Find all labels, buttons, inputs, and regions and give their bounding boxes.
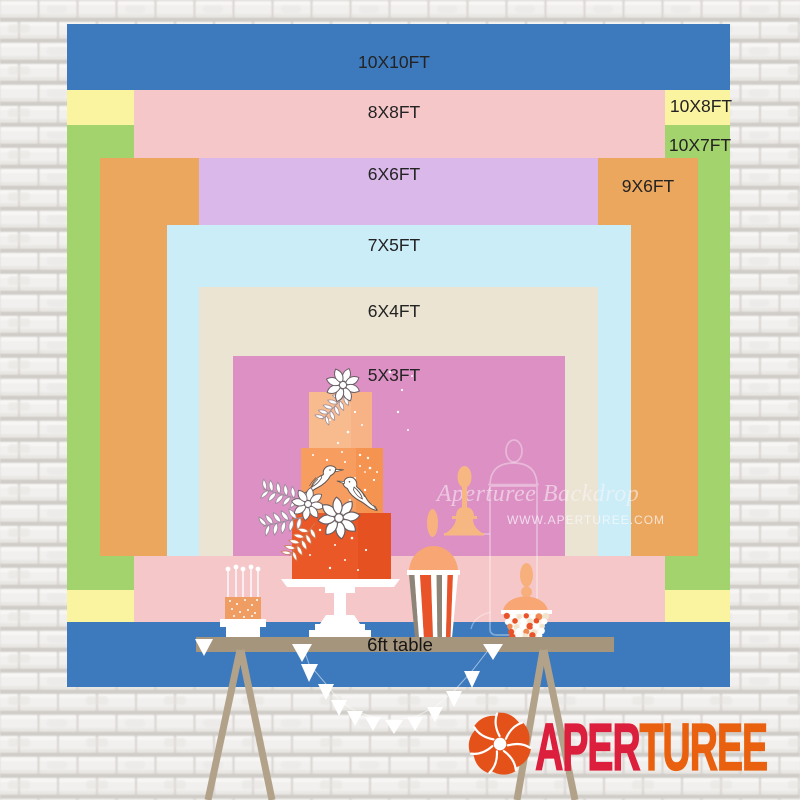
svg-text:APERTUREE: APERTUREE bbox=[535, 709, 767, 785]
svg-text:6ft table: 6ft table bbox=[367, 634, 433, 655]
